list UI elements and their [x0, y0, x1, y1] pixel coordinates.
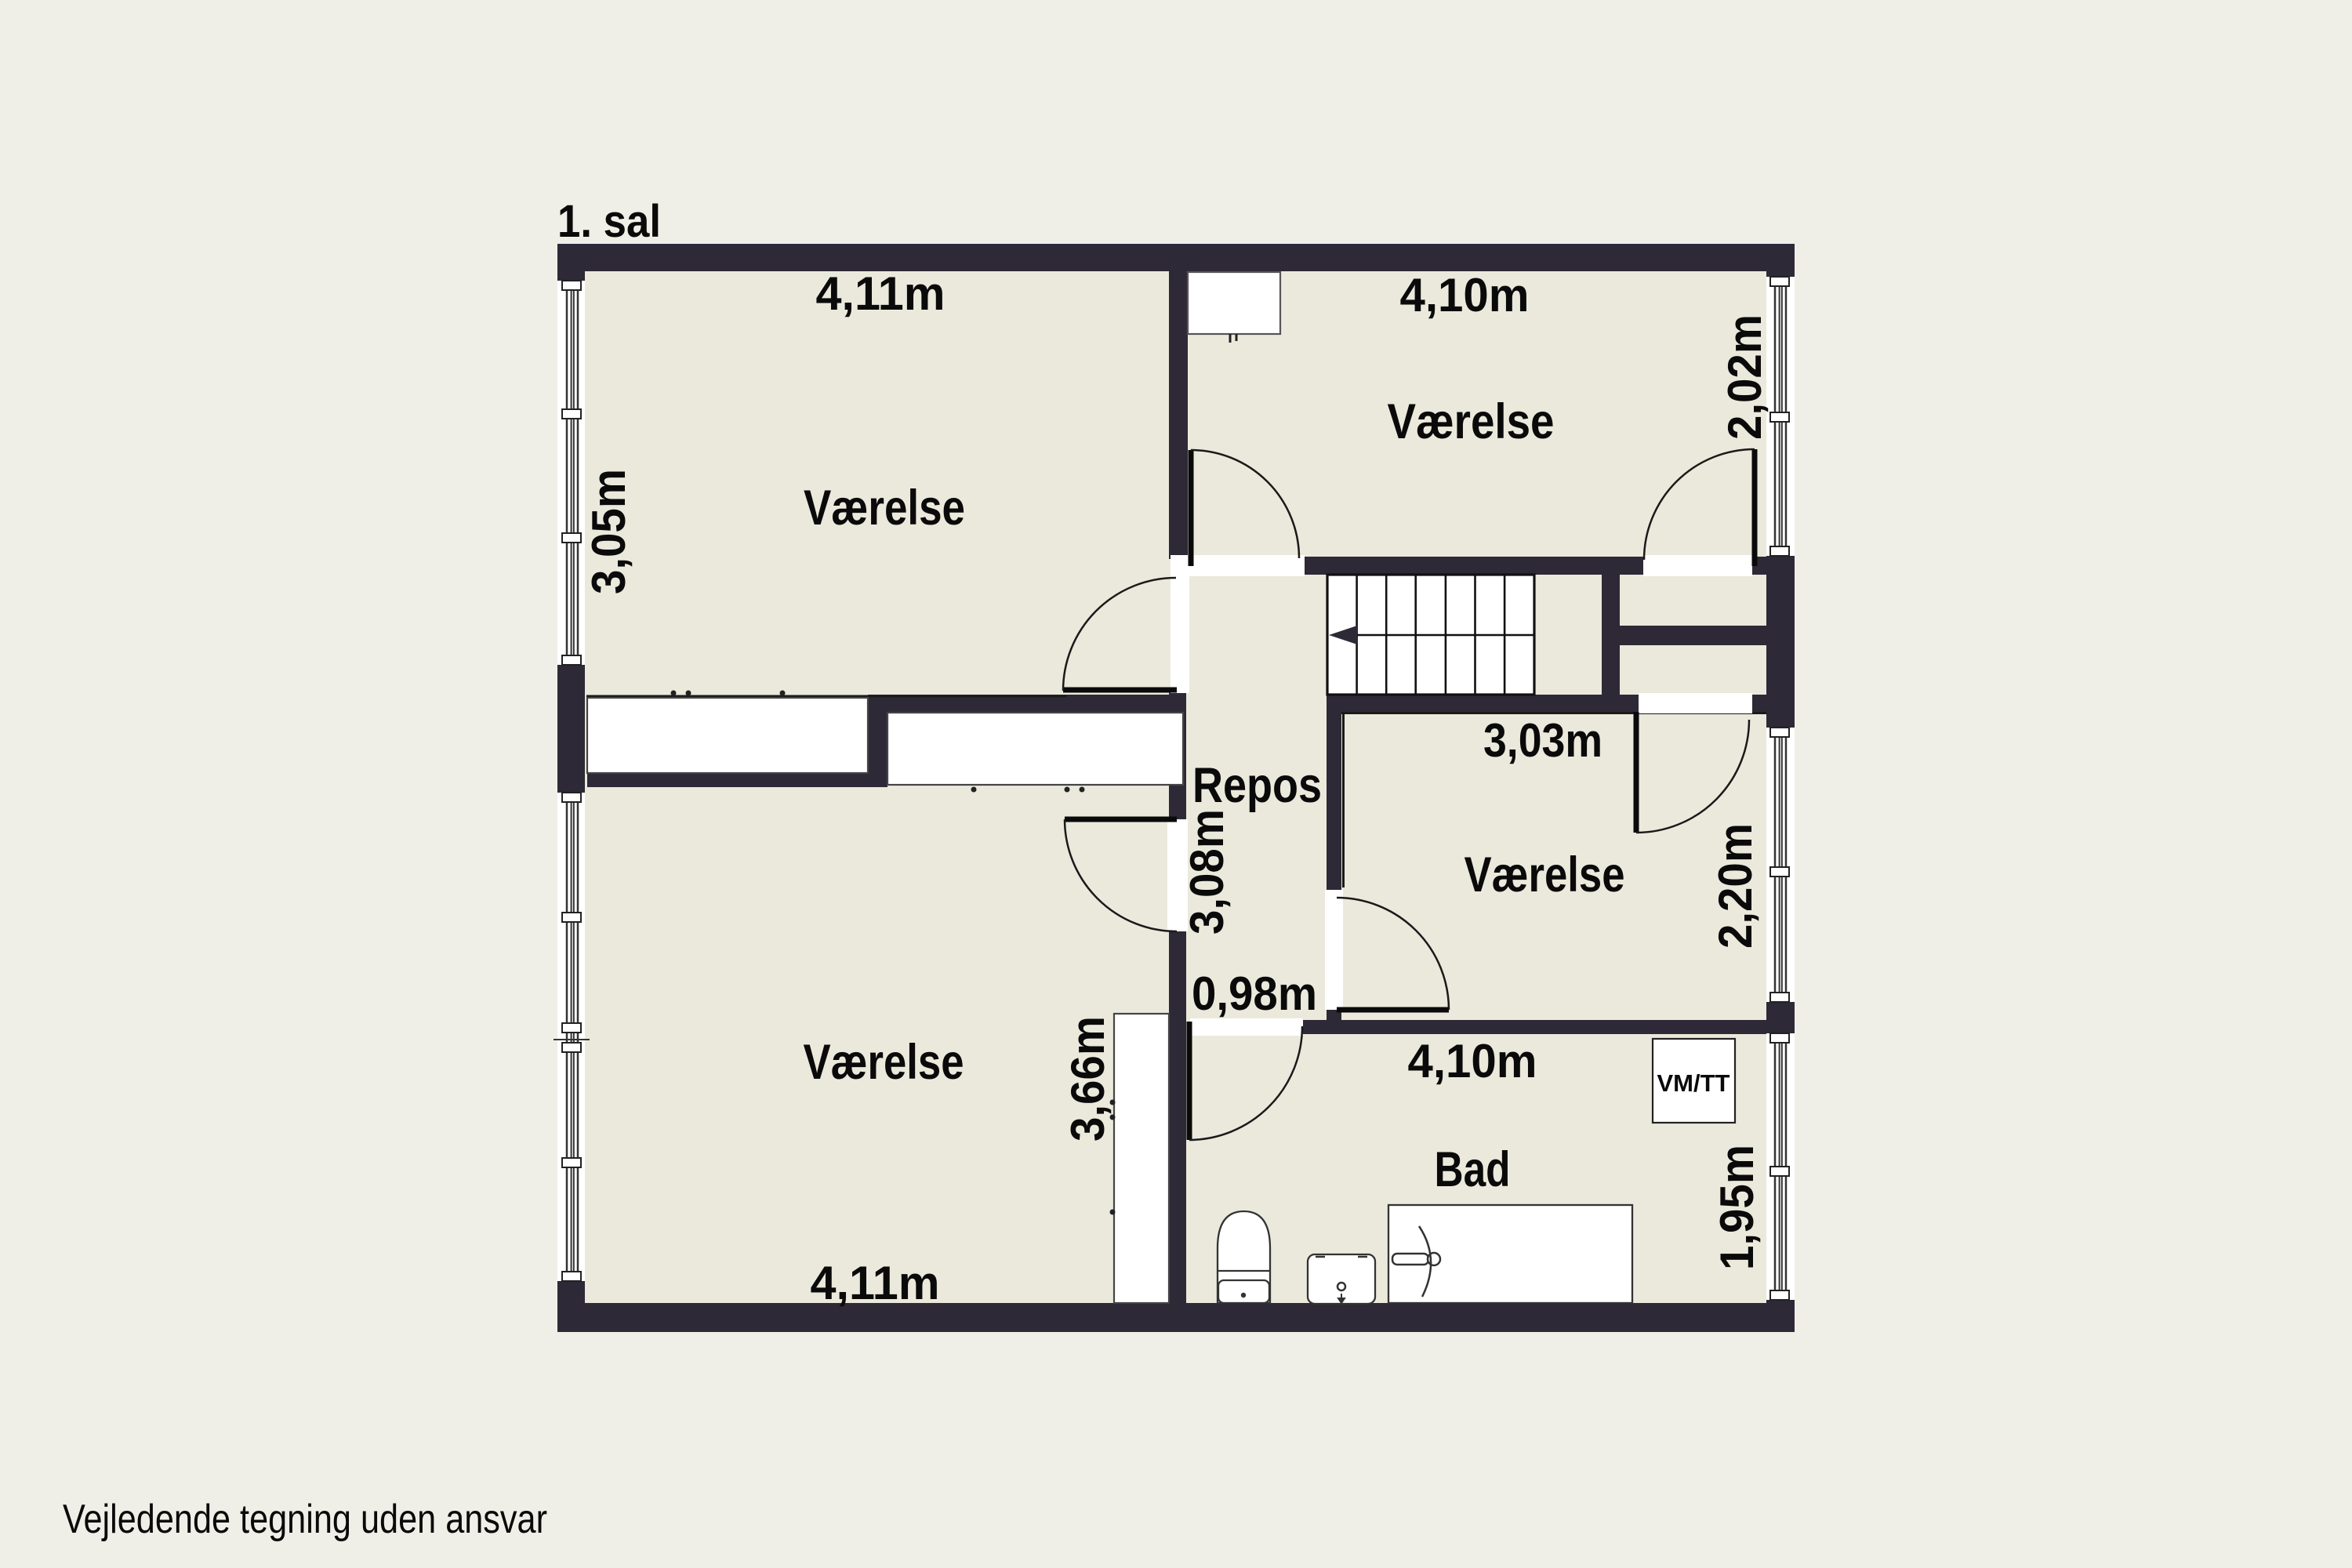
svg-text:Værelse: Værelse [1388, 394, 1555, 449]
svg-text:2,20m: 2,20m [1709, 823, 1762, 949]
svg-text:4,10m: 4,10m [1400, 269, 1530, 321]
svg-text:2,02m: 2,02m [1719, 314, 1771, 440]
svg-text:Værelse: Værelse [804, 1035, 964, 1090]
svg-text:0,98m: 0,98m [1192, 967, 1317, 1020]
svg-text:1. sal: 1. sal [557, 196, 661, 247]
svg-text:VM/TT: VM/TT [1657, 1069, 1730, 1097]
svg-text:Repos: Repos [1192, 758, 1322, 813]
svg-text:4,11m: 4,11m [811, 1257, 940, 1309]
svg-text:Værelse: Værelse [804, 481, 965, 535]
svg-text:Bad: Bad [1435, 1142, 1511, 1197]
svg-text:4,11m: 4,11m [816, 267, 946, 320]
svg-text:3,66m: 3,66m [1062, 1016, 1114, 1142]
svg-text:3,08m: 3,08m [1181, 809, 1233, 935]
svg-text:4,10m: 4,10m [1408, 1035, 1537, 1087]
svg-text:1,95m: 1,95m [1711, 1145, 1763, 1270]
svg-text:3,03m: 3,03m [1483, 714, 1602, 767]
svg-text:Vejledende tegning uden ansvar: Vejledende tegning uden ansvar [63, 1497, 547, 1542]
svg-text:Værelse: Værelse [1465, 848, 1625, 902]
svg-text:3,05m: 3,05m [583, 469, 635, 594]
